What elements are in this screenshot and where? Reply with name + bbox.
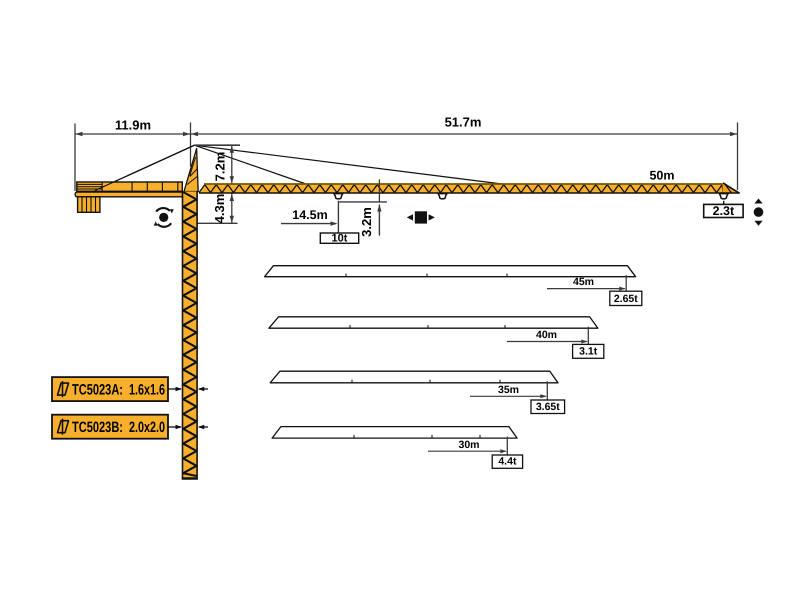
svg-text:4.4t: 4.4t [498,456,517,468]
svg-text:3.2m: 3.2m [359,207,374,237]
svg-text:30m: 30m [458,439,479,451]
svg-text:7.2m: 7.2m [213,152,228,182]
svg-text:2.0x2.0: 2.0x2.0 [129,419,165,436]
svg-text:35m: 35m [498,384,519,396]
svg-text:TC5023B:: TC5023B: [72,419,123,436]
svg-text:50m: 50m [649,169,674,183]
svg-text:3.1t: 3.1t [579,346,598,358]
svg-text:51.7m: 51.7m [445,115,482,130]
svg-text:1.6x1.6: 1.6x1.6 [129,382,165,399]
svg-text:40m: 40m [536,329,557,341]
svg-text:TC5023A:: TC5023A: [72,382,123,399]
svg-text:10t: 10t [332,233,348,245]
svg-text:14.5m: 14.5m [292,208,327,222]
svg-text:2.3t: 2.3t [713,204,735,218]
svg-text:2.65t: 2.65t [614,293,638,305]
svg-text:3.65t: 3.65t [536,401,560,413]
svg-text:11.9m: 11.9m [115,118,151,133]
svg-text:45m: 45m [573,276,594,288]
svg-text:4.3m: 4.3m [212,194,227,224]
